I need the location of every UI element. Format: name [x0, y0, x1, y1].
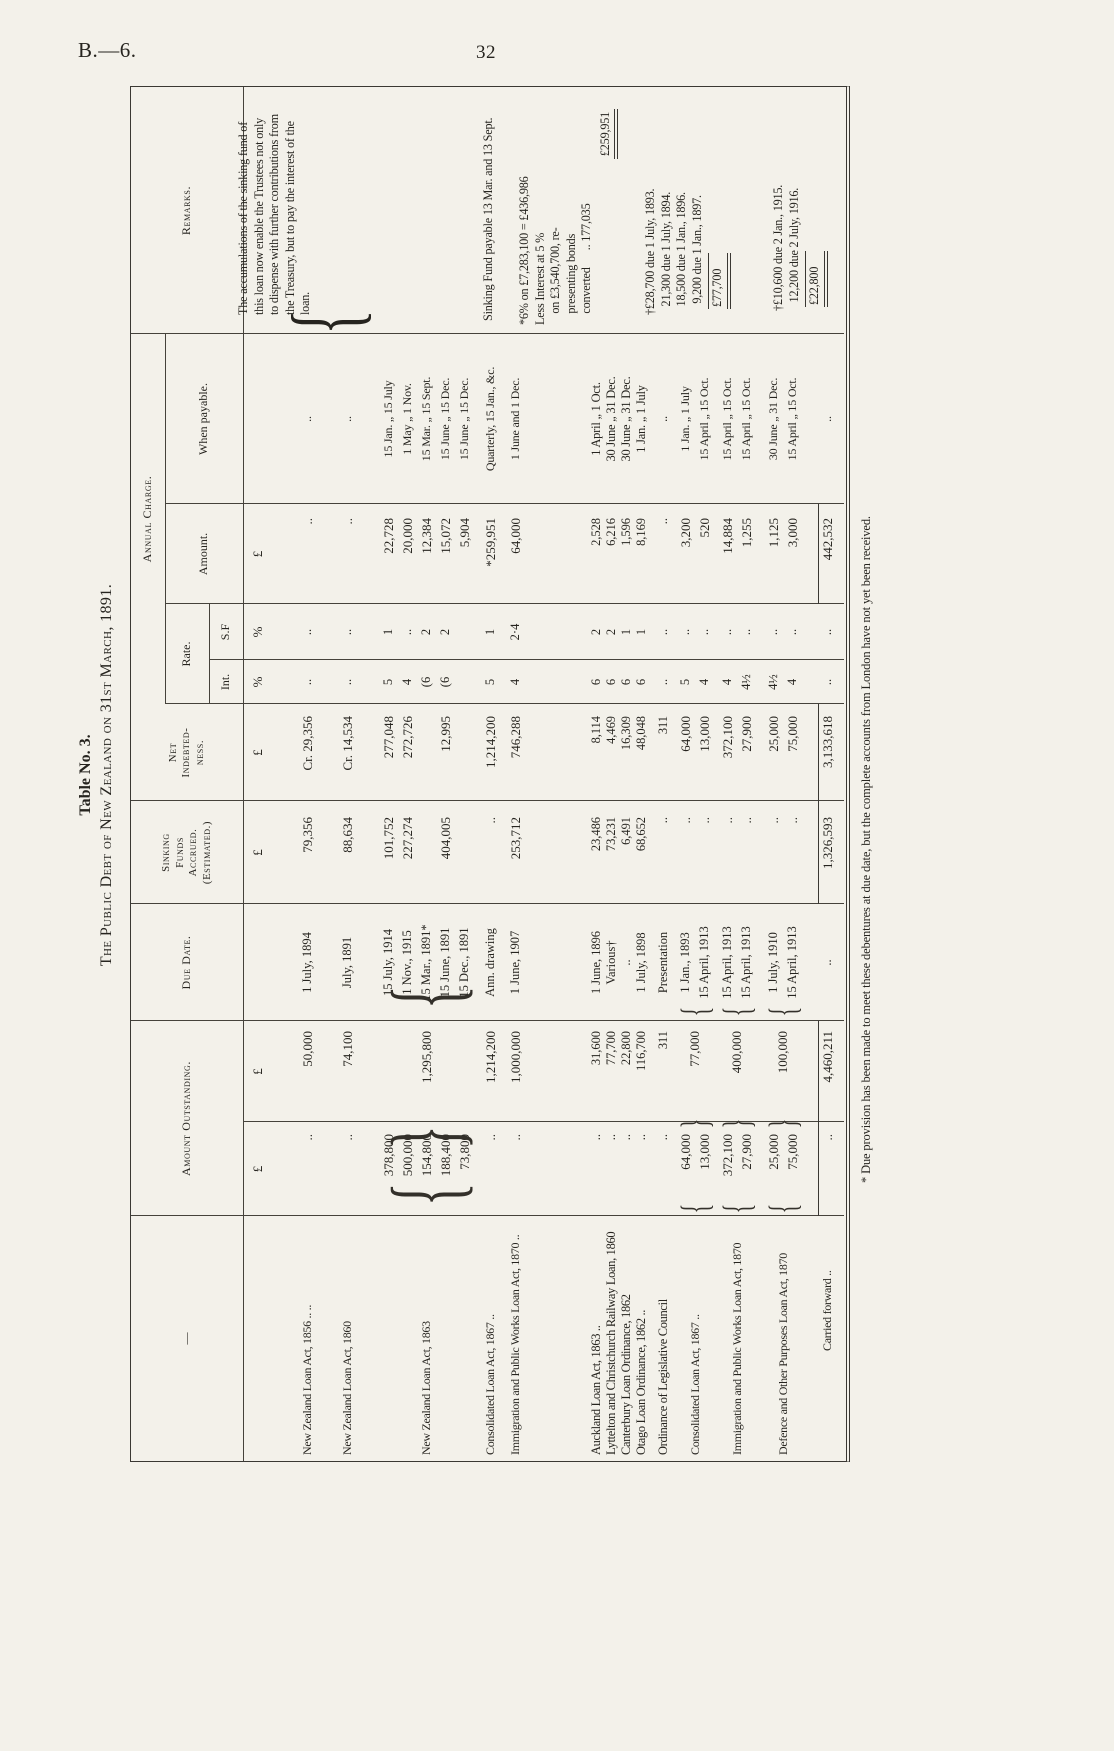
cell-item: 25,00075,000{} — [764, 1122, 802, 1216]
cell-amount: 8,169 — [634, 504, 649, 604]
cell-name: Defence and Other Purposes Loan Act, 187… — [764, 1210, 802, 1461]
cell-sinking: .... — [676, 801, 714, 904]
value: .. — [820, 660, 835, 704]
value: Canterbury Loan Ordinance, 1862 — [619, 1210, 634, 1455]
header-when-payable: When payable. — [165, 334, 243, 504]
cell-due: 15 April, 191315 April, 1913{ — [718, 904, 756, 1021]
value: .. — [340, 604, 355, 660]
value: 8,114 — [589, 716, 604, 801]
cell-sinking: 68,652 — [634, 801, 649, 904]
cell-sf: .... — [676, 604, 714, 660]
value: 1,295,800 — [419, 1031, 435, 1122]
cell-amount: 1,1253,000 — [764, 504, 802, 604]
cell-item: .. — [634, 1122, 649, 1216]
header-amount-outstanding: Amount Outstanding. — [131, 1021, 243, 1216]
value: .. — [619, 904, 634, 1021]
cell-name: Consolidated Loan Act, 1867 .. — [676, 1210, 714, 1461]
cell-item: .. — [298, 1122, 317, 1216]
cell-total: 100,000 — [764, 1021, 802, 1122]
line: 2 — [417, 604, 436, 660]
remark-accumulations: { The accumulations of the sinking fund … — [236, 93, 314, 329]
value: .. — [300, 518, 316, 604]
cell-name: New Zealand Loan Act, 1860 — [338, 1210, 357, 1461]
line: 15 Jan. „ 15 July — [379, 334, 398, 504]
cell-amount: .. — [338, 504, 357, 604]
cell-sinking: .... — [718, 801, 756, 904]
cell-net: 48,048 — [634, 704, 649, 801]
cell-amount: 3,200520 — [676, 504, 714, 604]
cell-amount: 6,216 — [604, 504, 619, 604]
value: 1 June and 1 Dec. — [508, 334, 523, 504]
line: 15 April, 1913 — [737, 904, 756, 1021]
cell-due: 1 July, 1894 — [298, 904, 317, 1021]
value: 4 — [508, 660, 523, 704]
cell-payable: Quarterly, 15 Jan., &c. — [481, 334, 500, 504]
remark-lines: †£28,700 due 1 July, 1893. 21,300 due 1 … — [643, 93, 705, 315]
line: 1 Jan., 1893 — [676, 904, 695, 1021]
line: 5,904 — [455, 518, 474, 604]
cell-due: .. — [818, 904, 837, 1021]
value: 4,469 — [604, 716, 619, 801]
line: 2 — [436, 604, 455, 660]
line: 4 — [718, 660, 737, 704]
remark-conversion-calc: *6% on £7,283,100 = £436,986Less Interes… — [517, 95, 618, 325]
cell-net: 3,133,618 — [818, 704, 837, 801]
line: .. — [783, 817, 802, 904]
line: .. — [737, 604, 756, 660]
line: 15 April, 1913 — [718, 904, 737, 1021]
brace-icon: { — [278, 309, 374, 334]
value: .. — [340, 660, 355, 704]
cell-sf: .. — [298, 604, 317, 660]
cell-item: .. — [619, 1122, 634, 1216]
cell-int: 6 — [619, 660, 634, 704]
value: 116,700 — [634, 1031, 649, 1122]
value: 1 July, 1898 — [634, 904, 649, 1021]
line: .. — [695, 817, 714, 904]
value: Defence and Other Purposes Loan Act, 187… — [776, 1210, 791, 1455]
line — [417, 817, 436, 904]
cell-item: .. — [656, 1122, 671, 1216]
brace-icon: } — [379, 1126, 474, 1150]
line: 5 — [379, 660, 398, 704]
cell-amount: 2,528 — [589, 504, 604, 604]
value: Presentation — [656, 904, 671, 1021]
cell-sinking: .. — [481, 801, 500, 904]
header-first-column: — — [131, 1216, 243, 1461]
page-number: 32 — [476, 42, 496, 64]
value: Immigration and Public Works Loan Act, 1… — [508, 1210, 523, 1455]
line: .. — [737, 817, 756, 904]
value: 442,532 — [820, 518, 836, 604]
line: 9,200 due 1 Jan., 1897. — [690, 93, 706, 315]
value: .. — [820, 904, 835, 1021]
value: 400,000 — [729, 1031, 745, 1122]
cell-item: 378,800500,000154,800188,40073,800{} — [379, 1122, 474, 1216]
cell-name: Auckland Loan Act, 1863 .. — [589, 1210, 604, 1461]
line: 4½ — [764, 660, 783, 704]
cell-payable: .. — [338, 334, 357, 504]
cell-sf: 1 — [619, 604, 634, 660]
line: 1 Jan. „ 1 July — [676, 334, 695, 504]
cell-payable: 1 April „ 1 Oct. — [589, 334, 604, 504]
table-row: New Zealand Loan Act, 1860..74,100July, … — [338, 87, 357, 1461]
line: 15 April „ 15 Oct. — [783, 334, 802, 504]
header-int: Int. — [209, 660, 243, 704]
cell-name: Lyttelton and Christchurch Railway Loan,… — [604, 1210, 619, 1461]
line — [455, 660, 474, 704]
line: .. — [764, 604, 783, 660]
line: 12,995 — [436, 716, 455, 801]
value: 23,486 — [589, 817, 604, 904]
remark-total-row: £259,951 — [598, 109, 619, 325]
line — [417, 716, 436, 801]
cell-amount: 442,532 — [818, 504, 837, 604]
cell-payable: 30 June „ 31 Dec.15 April „ 15 Oct. — [764, 334, 802, 504]
table-row: Canterbury Loan Ordinance, 1862..22,800.… — [619, 87, 634, 1461]
value: 1 June, 1907 — [508, 904, 523, 1021]
value: 6 — [619, 660, 634, 704]
value: 5 — [483, 660, 498, 704]
cell-payable: 1 Jan. „ 1 July — [634, 334, 649, 504]
header-due-date: Due Date. — [131, 904, 243, 1021]
cell-int: .. — [818, 660, 837, 704]
value: July, 1891 — [340, 904, 355, 1021]
value: Lyttelton and Christchurch Railway Loan,… — [604, 1210, 619, 1455]
header-sinking-funds: SinkingFundsAccrued.(Estimated.) — [131, 801, 243, 904]
line: *6% on £7,283,100 = £436,986 — [517, 95, 533, 325]
value: 1 June, 1896 — [589, 904, 604, 1021]
value: 48,048 — [634, 716, 649, 801]
brace-icon: { — [379, 985, 474, 1009]
line: (Estimated.) — [201, 821, 215, 884]
value: .. — [820, 334, 835, 504]
cell-sf: 1..22 — [379, 604, 474, 660]
value: 1,214,200 — [483, 716, 499, 801]
value: 746,288 — [508, 716, 524, 801]
value: 6,216 — [604, 518, 619, 604]
cell-payable: .. — [818, 334, 837, 504]
cell-due: 1 June, 1896 — [589, 904, 604, 1021]
value: .. — [656, 334, 671, 504]
document-reference: B.—6. — [78, 38, 137, 63]
line — [455, 604, 474, 660]
cell-sf: 2·4 — [506, 604, 525, 660]
cell-total: 77,000 — [676, 1021, 714, 1122]
value: 6 — [589, 660, 604, 704]
cell-net: 4,469 — [604, 704, 619, 801]
cell-net: 16,309 — [619, 704, 634, 801]
remark-total: £22,800 — [805, 251, 828, 307]
line: 15 April „ 15 Oct. — [695, 334, 714, 504]
line: 372,100 — [718, 716, 737, 801]
value: Ann. drawing — [483, 904, 498, 1021]
cell-payable: 15 April „ 15 Oct.15 April „ 15 Oct. — [718, 334, 756, 504]
value: .. — [300, 334, 315, 504]
footnote: * Due provision has been made to meet th… — [859, 313, 874, 1183]
value: .. — [300, 1134, 316, 1216]
value: .. — [619, 1134, 634, 1216]
cell-name: Otago Loan Ordinance, 1862 .. — [634, 1210, 649, 1461]
cell-sf: 2 — [604, 604, 619, 660]
cell-int: 6 — [634, 660, 649, 704]
cell-total: 116,700 — [634, 1021, 649, 1122]
cell-total: 4,460,211 — [818, 1021, 837, 1122]
table-row: New Zealand Loan Act, 1863378,800500,000… — [379, 87, 474, 1461]
value: 30 June „ 31 Dec. — [604, 334, 619, 504]
cell-payable: 30 June „ 31 Dec. — [604, 334, 619, 504]
line: 27,900 — [737, 716, 756, 801]
line: 3,200 — [676, 518, 695, 604]
value: 1 — [619, 604, 634, 660]
line: 21,300 due 1 July, 1894. — [659, 93, 675, 315]
line: 227,274 — [398, 817, 417, 904]
table-title: The Public Debt of New Zealand on 31st M… — [98, 88, 116, 1462]
cell-net: 25,00075,000 — [764, 704, 802, 801]
brace-icon: { — [676, 1204, 714, 1213]
cell-sf: .. — [338, 604, 357, 660]
cell-total: 77,700 — [604, 1021, 619, 1122]
line: 22,728 — [379, 518, 398, 604]
line: 1 May „ 1 Nov. — [398, 334, 417, 504]
cell-name: Ordinance of Legislative Council — [656, 1210, 671, 1461]
cell-sinking: 1,326,593 — [818, 801, 837, 904]
line: 15 April, 1913 — [783, 904, 802, 1021]
cell-sinking: 88,634 — [338, 801, 357, 904]
cell-net: 311 — [656, 704, 671, 801]
value: 1 April „ 1 Oct. — [589, 334, 604, 504]
value: New Zealand Loan Act, 1863 — [419, 1210, 434, 1455]
cell-amount: .. — [656, 504, 671, 604]
line: †£28,700 due 1 July, 1893. — [643, 93, 659, 315]
rotated-table-canvas: Table No. 3. The Public Debt of New Zeal… — [75, 75, 875, 1635]
line: Net — [167, 743, 181, 762]
cell-name: New Zealand Loan Act, 1856 .. .. — [298, 1210, 317, 1461]
value: 64,000 — [508, 518, 524, 604]
remark-lines: †£10,600 due 2 Jan., 1915. 12,200 due 2 … — [771, 89, 802, 311]
line: on £3,540,700, re- — [548, 95, 564, 325]
cell-int: 54(6(6 — [379, 660, 474, 704]
cell-due: July, 1891 — [338, 904, 357, 1021]
value: 1,000,000 — [508, 1031, 524, 1122]
value: 30 June „ 31 Dec. — [619, 334, 634, 504]
value: 88,634 — [340, 817, 356, 904]
cell-total: 74,100 — [338, 1021, 357, 1122]
line: 12,200 due 2 July, 1916. — [787, 89, 803, 311]
value: 1 July, 1894 — [300, 904, 315, 1021]
cell-sf: .. — [818, 604, 837, 660]
line: converted .. 177,035 — [579, 95, 595, 325]
value: 22,800 — [619, 1031, 634, 1122]
cell-due: Ann. drawing — [481, 904, 500, 1021]
cell-sinking: 253,712 — [506, 801, 525, 904]
line: 1 — [379, 604, 398, 660]
brace-icon: { — [718, 1204, 756, 1213]
value: 16,309 — [619, 716, 634, 801]
value: Cr. 14,534 — [340, 716, 356, 801]
value: .. — [508, 1134, 524, 1216]
cell-total: 22,800 — [619, 1021, 634, 1122]
line: 15 April, 1913 — [695, 904, 714, 1021]
line: 15 June „ 15 Dec. — [436, 334, 455, 504]
public-debt-table: — Amount Outstanding. Due Date. SinkingF… — [130, 86, 850, 1462]
line — [455, 817, 474, 904]
cell-item: .. — [818, 1122, 837, 1216]
line: 4 — [783, 660, 802, 704]
header-remarks: Remarks. — [131, 87, 243, 334]
value: .. — [300, 660, 315, 704]
value: 4,460,211 — [820, 1031, 836, 1122]
remark-debentures-77700: †£28,700 due 1 July, 1893. 21,300 due 1 … — [643, 93, 731, 315]
value: 50,000 — [300, 1031, 316, 1122]
line: †£10,600 due 2 Jan., 1915. — [771, 89, 787, 311]
line: .. — [718, 604, 737, 660]
cell-sf: 2 — [589, 604, 604, 660]
line: 4 — [398, 660, 417, 704]
cell-sinking: 101,752227,274404,005 — [379, 801, 474, 904]
cell-total: 311 — [656, 1021, 671, 1122]
line: .. — [676, 604, 695, 660]
value: .. — [340, 334, 355, 504]
line: 15 April „ 15 Oct. — [737, 334, 756, 504]
header-sf: S.F — [209, 604, 243, 660]
cell-item: .. — [589, 1122, 604, 1216]
cell-amount: 64,000 — [506, 504, 525, 604]
line: 272,726 — [398, 716, 417, 801]
cell-due: 1 Jan., 189315 April, 1913{ — [676, 904, 714, 1021]
cell-net: 64,00013,000 — [676, 704, 714, 801]
line: .. — [676, 817, 695, 904]
cell-amount: 22,72820,00012,38415,0725,904 — [379, 504, 474, 604]
cell-total: 1,000,000 — [506, 1021, 525, 1122]
value: .. — [656, 817, 671, 904]
cell-int: 6 — [589, 660, 604, 704]
cell-amount: *259,951 — [481, 504, 500, 604]
value: 2 — [589, 604, 604, 660]
line: Accrued. — [187, 829, 201, 877]
value: .. — [820, 1134, 836, 1216]
line: .. — [695, 604, 714, 660]
brace-icon: { — [764, 1007, 802, 1016]
cell-name: Consolidated Loan Act, 1867 .. — [481, 1210, 500, 1461]
value: 1,326,593 — [820, 817, 836, 904]
line: 404,005 — [436, 817, 455, 904]
value: .. — [656, 1134, 671, 1216]
cell-total: 1,295,800 — [379, 1021, 474, 1122]
cell-int: 5 — [481, 660, 500, 704]
line: 20,000 — [398, 518, 417, 604]
value: 2·4 — [508, 604, 523, 660]
value: 1 Jan. „ 1 July — [634, 334, 649, 504]
cell-due: 1 July, 1898 — [634, 904, 649, 1021]
cell-int: .. — [338, 660, 357, 704]
line: (6 — [436, 660, 455, 704]
value: 31,600 — [589, 1031, 604, 1122]
value: 311 — [656, 1031, 671, 1122]
line: 15 Mar. „ 15 Sept. — [417, 334, 436, 504]
cell-sf: 1 — [481, 604, 500, 660]
value: 1 — [483, 604, 498, 660]
cell-sf: .... — [718, 604, 756, 660]
remark-sinking-fund-payable: Sinking Fund payable 13 Mar. and 13 Sept… — [481, 99, 497, 321]
cell-name: New Zealand Loan Act, 1863 — [379, 1210, 474, 1461]
cell-item: .. — [338, 1122, 357, 1216]
value: 2 — [604, 604, 619, 660]
cell-amount: .. — [298, 504, 317, 604]
line: 18,500 due 1 Jan., 1896. — [674, 93, 690, 315]
value: 100,000 — [775, 1031, 791, 1122]
line: Sinking — [160, 833, 174, 872]
value: .. — [340, 518, 356, 604]
remark-total: £259,951 — [598, 109, 619, 159]
value: .. — [340, 1134, 356, 1216]
brace-icon: { — [764, 1204, 802, 1213]
cell-payable: 1 Jan. „ 1 July15 April „ 15 Oct. — [676, 334, 714, 504]
line: 25,000 — [764, 716, 783, 801]
cell-sf: .... — [764, 604, 802, 660]
cell-int: .. — [298, 660, 317, 704]
cell-sf: 1 — [634, 604, 649, 660]
remark-debentures-22800: †£10,600 due 2 Jan., 1915. 12,200 due 2 … — [771, 89, 828, 311]
line: 15,072 — [436, 518, 455, 604]
brace-icon: { — [718, 1007, 756, 1016]
line: Less Interest at 5 % — [533, 95, 549, 325]
line: (6 — [417, 660, 436, 704]
value: .. — [300, 604, 315, 660]
value: 6 — [604, 660, 619, 704]
value: Various† — [604, 904, 619, 1021]
line: 5 — [676, 660, 695, 704]
line: 30 June „ 31 Dec. — [764, 334, 783, 504]
cell-item: .. — [481, 1122, 500, 1216]
value: Consolidated Loan Act, 1867 .. — [688, 1210, 703, 1455]
cell-due: 15 July, 19141 Nov., 191515 Mar., 1891*1… — [379, 904, 474, 1021]
cell-due: 1 June, 1907 — [506, 904, 525, 1021]
value: .. — [604, 1134, 619, 1216]
cell-total: 50,000 — [298, 1021, 317, 1122]
value: .. — [483, 1134, 499, 1216]
cell-name: Immigration and Public Works Loan Act, 1… — [718, 1210, 756, 1461]
cell-name: Canterbury Loan Ordinance, 1862 — [619, 1210, 634, 1461]
line: 75,000 — [783, 716, 802, 801]
cell-payable: .. — [298, 334, 317, 504]
cell-item: .. — [604, 1122, 619, 1216]
value: Quarterly, 15 Jan., &c. — [483, 334, 498, 504]
value: 73,231 — [604, 817, 619, 904]
line: Indebted- — [180, 728, 194, 778]
cell-amount: 1,596 — [619, 504, 634, 604]
cell-sinking: .... — [764, 801, 802, 904]
remark-total-row: £77,700 — [708, 93, 731, 309]
line: 15 June „ 15 Dec. — [455, 334, 474, 504]
cell-int: 4 — [506, 660, 525, 704]
cell-sinking: 79,356 — [298, 801, 317, 904]
cell-net: 746,288 — [506, 704, 525, 801]
value: Auckland Loan Act, 1863 .. — [589, 1210, 604, 1455]
value: 74,100 — [340, 1031, 356, 1122]
cell-due: .. — [619, 904, 634, 1021]
value: 8,169 — [634, 518, 649, 604]
line: 64,000 — [676, 716, 695, 801]
cell-item: 64,00013,000{} — [676, 1122, 714, 1216]
remark-lines: *6% on £7,283,100 = £436,986Less Interes… — [517, 95, 595, 325]
cell-sinking: 73,231 — [604, 801, 619, 904]
line: 4 — [695, 660, 714, 704]
cell-item: 372,10027,900{} — [718, 1122, 756, 1216]
line — [455, 716, 474, 801]
cell-int: 54 — [676, 660, 714, 704]
line: 12,384 — [417, 518, 436, 604]
